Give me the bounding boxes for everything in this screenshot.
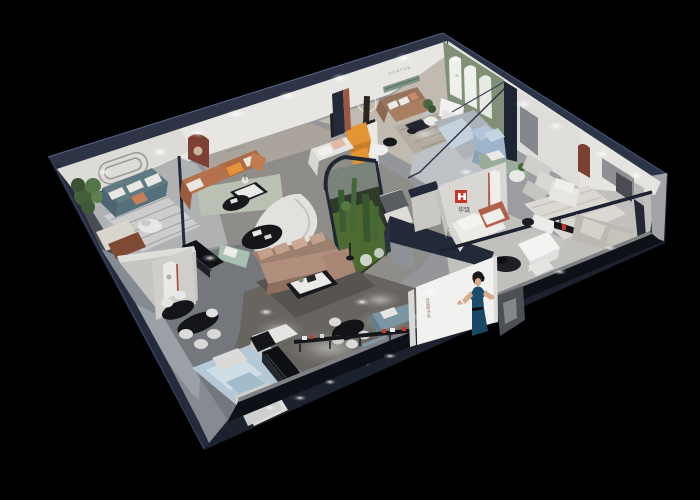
svg-text:华饶: 华饶 [458, 206, 470, 214]
